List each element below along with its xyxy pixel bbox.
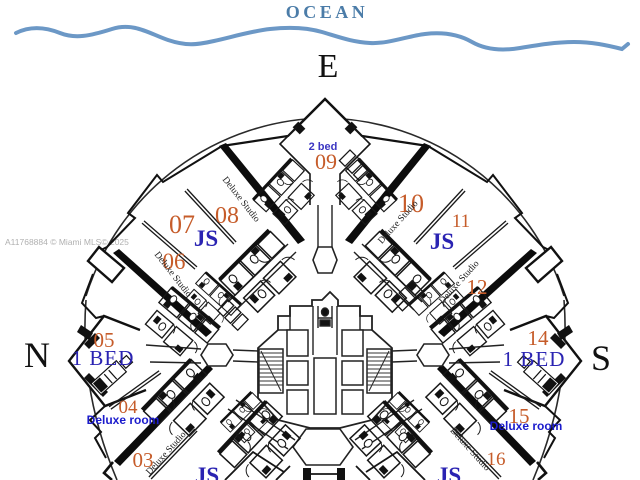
svg-text:OCEAN: OCEAN: [286, 2, 369, 22]
svg-text:Deluxe room: Deluxe room: [87, 413, 160, 427]
svg-text:2 bed: 2 bed: [309, 141, 338, 153]
svg-text:E: E: [318, 48, 339, 85]
svg-text:1 BED: 1 BED: [503, 347, 566, 371]
svg-text:JS: JS: [194, 226, 218, 251]
svg-text:11: 11: [452, 211, 470, 232]
svg-text:07: 07: [169, 210, 195, 239]
svg-text:N: N: [24, 335, 50, 375]
svg-text:Deluxe room: Deluxe room: [490, 419, 563, 433]
svg-text:JS: JS: [195, 463, 219, 480]
svg-text:08: 08: [215, 203, 239, 229]
svg-text:1 BED: 1 BED: [72, 346, 135, 370]
svg-text:S: S: [591, 338, 611, 378]
svg-text:JS: JS: [437, 463, 461, 480]
svg-text:JS: JS: [430, 229, 454, 254]
